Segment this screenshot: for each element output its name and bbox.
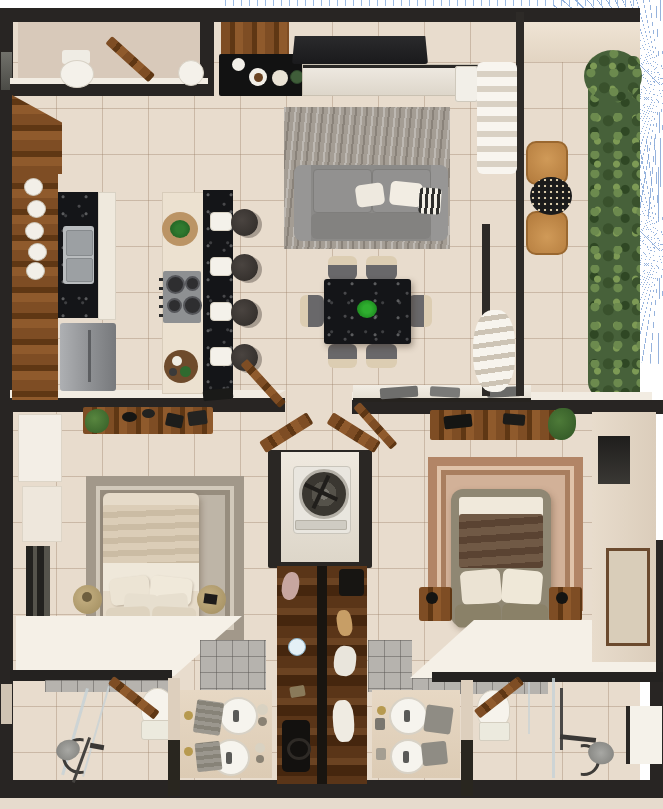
room-bathroom-2 — [370, 640, 650, 790]
window-left-bathroom — [1, 684, 12, 724]
room-powder-room — [14, 18, 210, 88]
room-kitchen — [14, 170, 259, 395]
floor-plan — [0, 0, 663, 809]
tick-marks-top — [225, 0, 637, 6]
console-tablet-2 — [430, 386, 460, 398]
room-living-room — [240, 20, 515, 250]
room-wardrobe-corridor — [277, 566, 367, 784]
room-laundry-closet — [268, 440, 372, 568]
room-bedroom-1 — [14, 415, 279, 615]
sculpture-spiral — [473, 310, 515, 392]
room-bedroom-2 — [390, 415, 645, 625]
room-balcony — [520, 25, 640, 395]
room-bathroom-1 — [14, 640, 270, 790]
room-dining-area — [295, 250, 435, 375]
ground-strip-bottom — [0, 798, 663, 809]
